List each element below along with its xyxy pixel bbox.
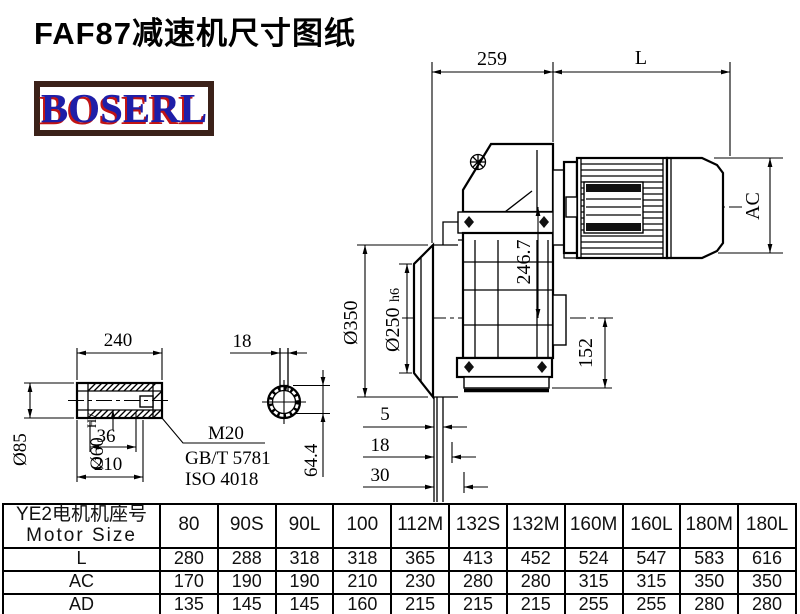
dim-246-7-label: 246.7 [513,240,535,285]
dim-key-18: 18 [230,331,307,355]
table-body: L280288318318365413452524547583616AC1701… [3,548,796,614]
dim-64-4-label: 64.4 [301,443,322,477]
dim-250-tolerance-label: h6 [388,288,403,302]
column-header: 180L [738,504,796,548]
value-cell: 524 [565,548,623,571]
dim-AC: AC [714,158,783,253]
column-header: 112M [391,504,449,548]
motor-size-header: YE2电机机座号 Motor Size [3,504,160,548]
value-cell: 255 [623,594,681,614]
table-row: AC170190190210230280280315315350350 [3,571,796,594]
dim-5-label: 5 [380,404,390,425]
value-cell: 350 [738,571,796,594]
value-cell: 190 [218,571,276,594]
dim-60-tolerance-label: H7 [85,413,99,428]
value-cell: 215 [507,594,565,614]
value-cell: 318 [276,548,334,571]
dim-152-label: 152 [575,338,597,368]
value-cell: 215 [449,594,507,614]
column-header: 90S [218,504,276,548]
thread-label: M20 [208,423,244,444]
table-header-row: YE2电机机座号 Motor Size 8090S90L100112M132S1… [3,504,796,548]
standard-iso-label: ISO 4018 [185,469,258,490]
value-cell: 255 [565,594,623,614]
dim-240-label: 240 [104,330,133,351]
column-header: 100 [333,504,391,548]
dim-5-18-30: 5 18 30 [363,404,488,493]
value-cell: 318 [333,548,391,571]
table-row: AD135145145160215215215255255280280 [3,594,796,614]
value-cell: 547 [623,548,681,571]
value-cell: 413 [449,548,507,571]
main-view: 259 L AC 246.7 152 [340,47,783,502]
dim-60-label: Ø60 [87,437,108,470]
value-cell: 315 [623,571,681,594]
value-cell: 280 [680,594,738,614]
value-cell: 365 [391,548,449,571]
thread-callout: M20 GB/T 5781 ISO 4018 [162,418,271,490]
value-cell: 210 [333,571,391,594]
dim-18-label: 18 [371,435,390,456]
value-cell: 583 [680,548,738,571]
value-cell: 280 [738,594,796,614]
motor-size-table: YE2电机机座号 Motor Size 8090S90L100112M132S1… [2,503,797,614]
dim-85: Ø85 [10,383,74,466]
column-header: 180M [680,504,738,548]
value-cell: 350 [680,571,738,594]
dim-250h6: Ø250 h6 [382,264,412,373]
value-cell: 616 [738,548,796,571]
value-cell: 135 [160,594,218,614]
value-cell: 280 [507,571,565,594]
dim-AC-label: AC [742,192,764,220]
value-cell: 145 [218,594,276,614]
motor [566,158,723,258]
dim-350-label: Ø350 [340,301,362,345]
row-label: AC [3,571,160,594]
gearbox-housing [457,144,566,391]
dim-85-label: Ø85 [10,433,31,466]
dim-30-label: 30 [371,465,390,486]
bolt-symbol-icon [471,155,486,170]
column-header: 80 [160,504,218,548]
value-cell: 215 [391,594,449,614]
row-label: L [3,548,160,571]
column-header: 160L [623,504,681,548]
dim-240: 240 [77,330,162,380]
value-cell: 452 [507,548,565,571]
column-header: 90L [276,504,334,548]
column-header: 160M [565,504,623,548]
value-cell: 288 [218,548,276,571]
value-cell: 160 [333,594,391,614]
value-cell: 230 [391,571,449,594]
dim-259-label: 259 [477,48,507,70]
value-cell: 170 [160,571,218,594]
dim-L-label: L [635,47,647,69]
motor-nameplate [584,182,643,233]
value-cell: 315 [565,571,623,594]
drawing-sheet: FAF87减速机尺寸图纸 BOSERL [0,0,800,614]
row-label: AD [3,594,160,614]
motor-size-header-cn: YE2电机机座号 [4,505,159,526]
fan-cowl [667,158,723,258]
column-header: 132M [507,504,565,548]
output-flange [414,222,458,502]
value-cell: 145 [276,594,334,614]
dim-key-18-label: 18 [233,331,252,352]
shaft-detail-view: 240 36 210 Ø85 [10,330,271,490]
value-cell: 280 [449,571,507,594]
column-header: 132S [449,504,507,548]
dim-250-label: Ø250 [382,308,404,352]
dim-64-4: 64.4 [293,370,330,477]
value-cell: 280 [160,548,218,571]
table-row: L280288318318365413452524547583616 [3,548,796,571]
standard-gb-label: GB/T 5781 [185,448,271,469]
motor-size-header-en: Motor Size [4,526,159,547]
value-cell: 190 [276,571,334,594]
